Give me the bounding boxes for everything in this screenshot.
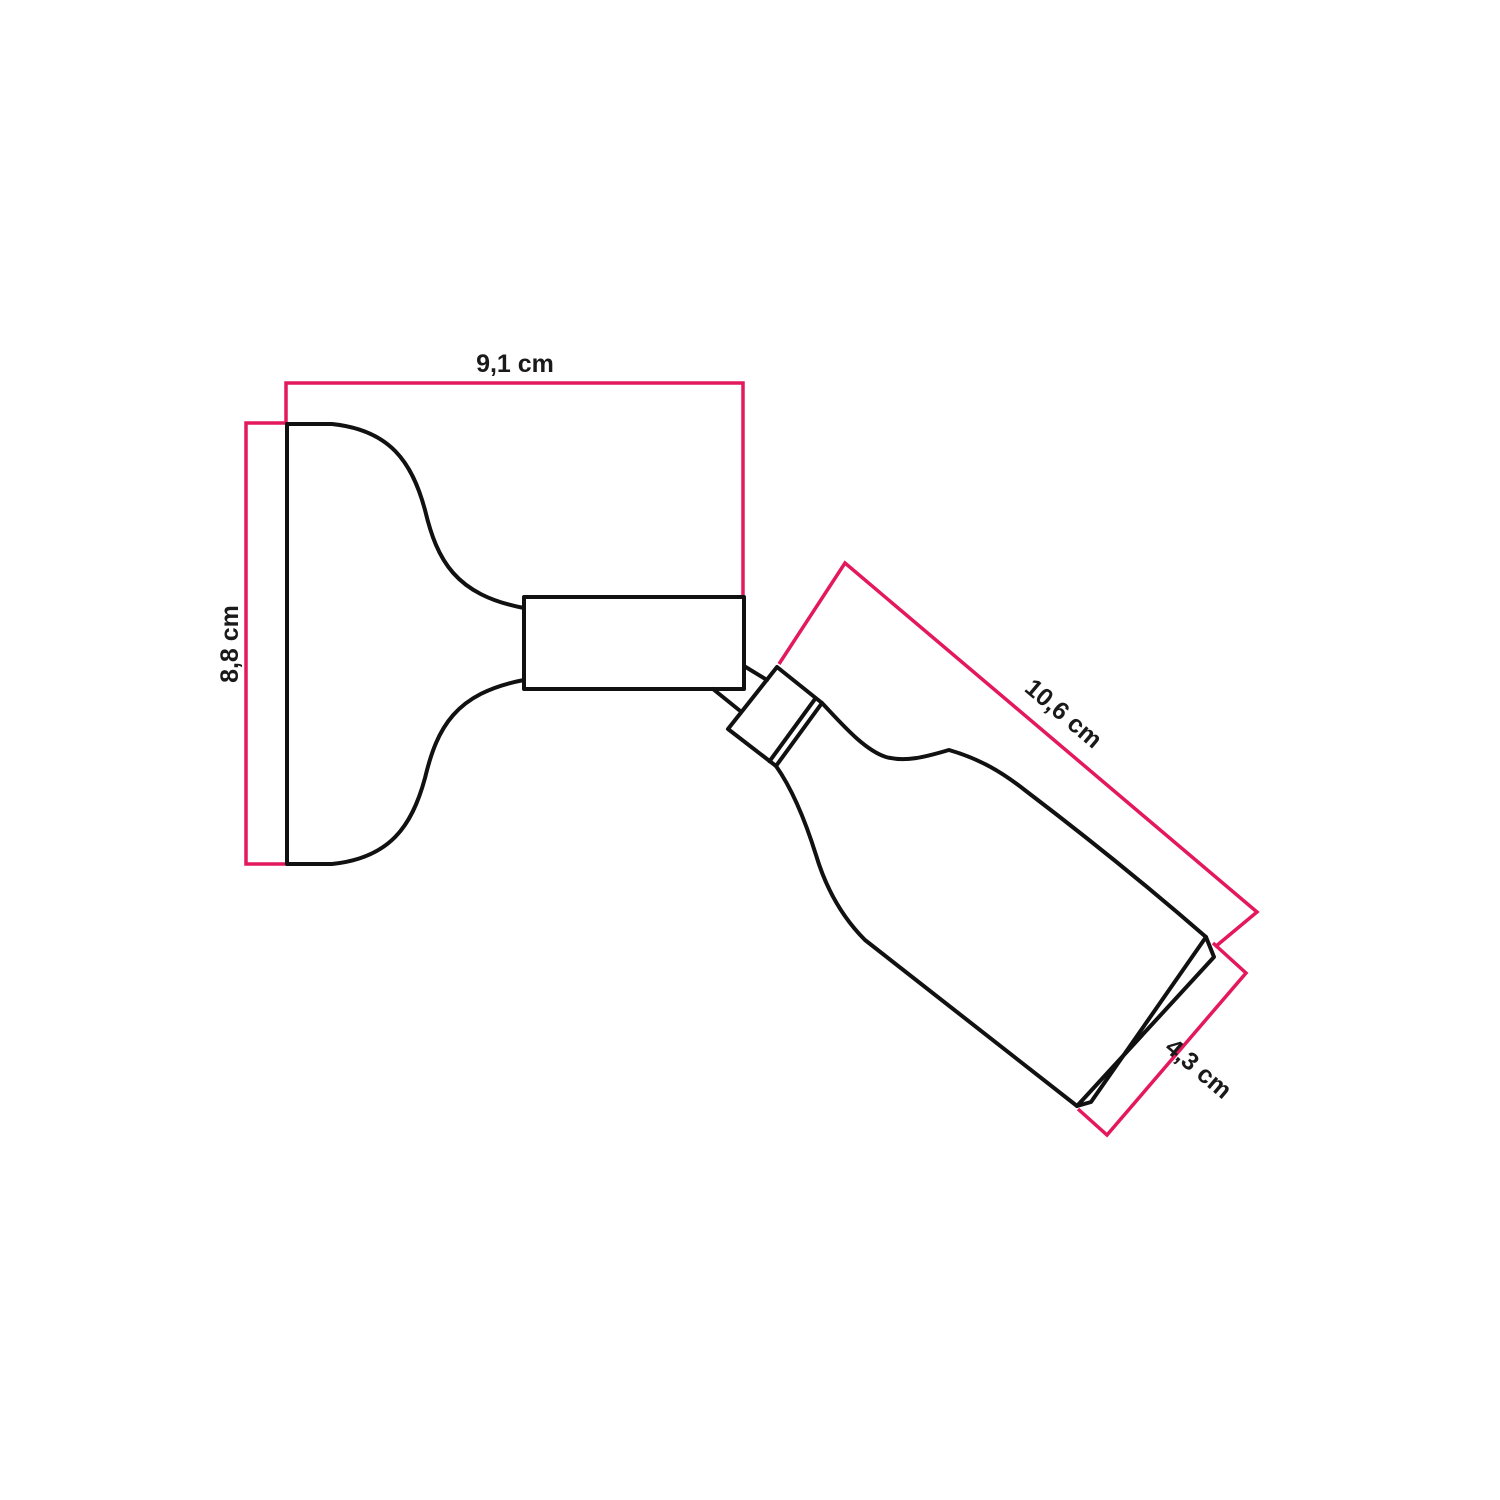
dimension-brackets	[246, 383, 1257, 1135]
spotlight-dimension-diagram: 9,1 cm 8,8 cm 10,6 cm 4,3 cm	[0, 0, 1500, 1500]
dim-holder-length-label: 10,6 cm	[1019, 673, 1107, 754]
lamp-rim-inner-edge	[1077, 937, 1206, 1106]
dim-holder-opening-bracket	[1078, 943, 1246, 1135]
dim-plate-width-label: 9,1 cm	[476, 350, 554, 378]
dim-holder-opening-label: 4,3 cm	[1160, 1033, 1237, 1105]
dim-plate-width-bracket	[286, 383, 743, 596]
dim-plate-height-bracket	[246, 423, 287, 864]
dimension-diagram-page: 9,1 cm 8,8 cm 10,6 cm 4,3 cm	[0, 0, 1500, 1500]
joint-strut-upper	[744, 666, 767, 680]
dim-holder-length-bracket	[779, 563, 1257, 947]
swivel-joint-seam	[770, 698, 816, 761]
wall-plate-outline	[287, 424, 524, 864]
dim-plate-height-label: 8,8 cm	[216, 605, 244, 683]
lamp-holder-outline	[776, 703, 1214, 1106]
mount-cylinder	[524, 597, 744, 689]
dimension-labels: 9,1 cm 8,8 cm 10,6 cm 4,3 cm	[216, 350, 1237, 1105]
product-outline	[287, 424, 1214, 1106]
joint-strut-lower	[713, 689, 739, 710]
